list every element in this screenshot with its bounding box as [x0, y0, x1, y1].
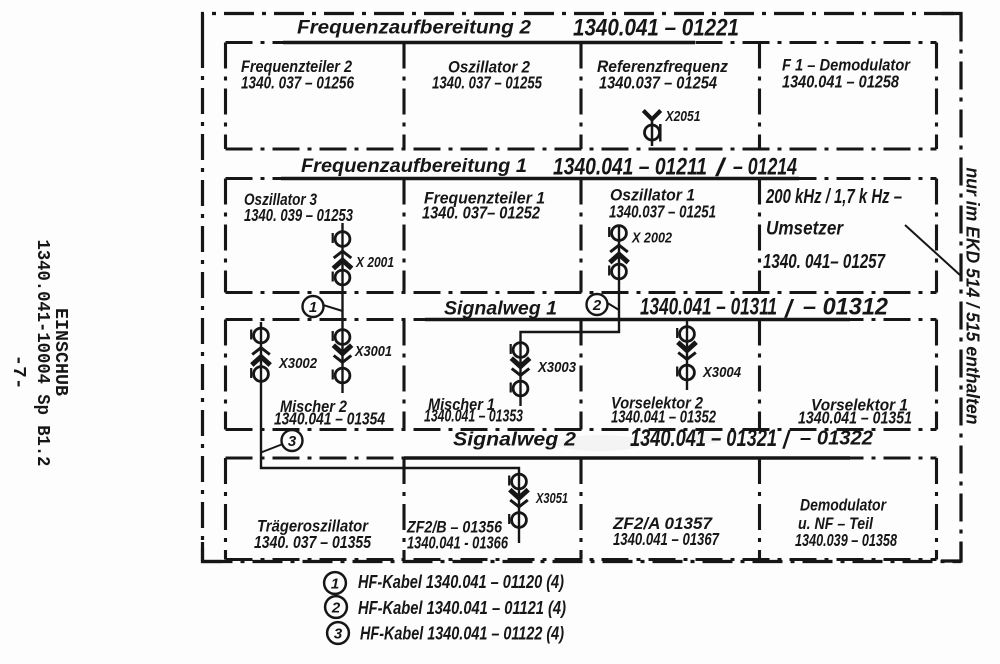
svg-text:Frequenzaufbereitung 2: Frequenzaufbereitung 2: [297, 18, 531, 39]
svg-text:Signalweg 1: Signalweg 1: [444, 299, 557, 320]
svg-text:1340.041 – 01351: 1340.041 – 01351: [798, 408, 912, 428]
svg-text:– 01312: – 01312: [803, 294, 889, 321]
svg-text:X 2002: X 2002: [631, 230, 672, 247]
svg-text:1340. 037 – 01255: 1340. 037 – 01255: [432, 73, 542, 93]
svg-text:1340.037 – 01254: 1340.037 – 01254: [599, 73, 717, 93]
svg-text:nur im EKD 514 / 515 enthalten: nur im EKD 514 / 515 enthalten: [963, 168, 983, 425]
svg-text:1: 1: [331, 576, 339, 593]
svg-text:1340. 041– 01257: 1340. 041– 01257: [763, 251, 886, 273]
svg-text:1340.041 – 01321: 1340.041 – 01321: [630, 425, 777, 452]
svg-text:Signalweg 2: Signalweg 2: [453, 430, 576, 451]
svg-text:1340.037 – 01251: 1340.037 – 01251: [609, 202, 716, 222]
svg-text:2: 2: [592, 297, 602, 314]
svg-text:1340.041-10004 Sp B1.2: 1340.041-10004 Sp B1.2: [32, 240, 52, 467]
svg-text:1340. 037 – 01355: 1340. 037 – 01355: [254, 532, 371, 552]
svg-text:X 2001: X 2001: [355, 254, 394, 271]
svg-text:1340.039 – 01358: 1340.039 – 01358: [795, 530, 897, 550]
svg-text:1340.041 - 01366: 1340.041 - 01366: [407, 533, 508, 553]
svg-text:2: 2: [331, 600, 341, 617]
svg-text:1: 1: [309, 299, 317, 316]
svg-text:– 01322: – 01322: [800, 428, 873, 450]
svg-text:3: 3: [334, 626, 343, 643]
svg-text:X3004: X3004: [702, 364, 741, 381]
svg-text:1340.041 – 01311: 1340.041 – 01311: [640, 294, 777, 321]
svg-text:HF-Kabel 1340.041 – 01120 (4: HF-Kabel 1340.041 – 01120 (4): [358, 572, 564, 592]
svg-text:1340.041 – 01353: 1340.041 – 01353: [424, 406, 523, 426]
svg-text:X3002: X3002: [278, 355, 317, 372]
svg-text:Umsetzer: Umsetzer: [766, 219, 844, 240]
svg-text:1340.041 – 01258: 1340.041 – 01258: [782, 72, 899, 92]
svg-text:1340. 037– 01252: 1340. 037– 01252: [422, 203, 540, 223]
svg-text:1340. 037 – 01256: 1340. 037 – 01256: [241, 73, 354, 93]
svg-text:X3051: X3051: [535, 490, 568, 507]
svg-text:1340.041 – 01367: 1340.041 – 01367: [613, 529, 720, 549]
svg-text:200 kHz / 1,7 k Hz –: 200 kHz / 1,7 k Hz –: [765, 186, 902, 208]
svg-text:1340.041 – 01221: 1340.041 – 01221: [573, 15, 739, 42]
svg-text:1340.041 – 01211: 1340.041 – 01211: [553, 154, 707, 181]
svg-text:-7-: -7-: [8, 355, 28, 390]
svg-text:– 01214: – 01214: [733, 154, 797, 181]
svg-text:HF-Kabel 1340.041 – 01122 (4: HF-Kabel 1340.041 – 01122 (4): [360, 624, 564, 644]
svg-text:1340.041 – 01354: 1340.041 – 01354: [274, 409, 385, 429]
svg-text:3: 3: [288, 433, 297, 450]
svg-text:Demodulator: Demodulator: [800, 497, 887, 515]
svg-text:HF-Kabel 1340.041 – 01121 (4: HF-Kabel 1340.041 – 01121 (4): [358, 598, 566, 618]
svg-text:X2051: X2051: [665, 108, 701, 125]
svg-text:X3003: X3003: [537, 359, 576, 376]
svg-text:X3001: X3001: [354, 343, 392, 360]
svg-text:Frequenzaufbereitung 1: Frequenzaufbereitung 1: [301, 156, 527, 177]
svg-text:1340. 039 – 01253: 1340. 039 – 01253: [244, 205, 353, 225]
svg-text:1340.041 – 01352: 1340.041 – 01352: [611, 407, 716, 427]
svg-text:EINSCHUB: EINSCHUB: [50, 308, 70, 396]
